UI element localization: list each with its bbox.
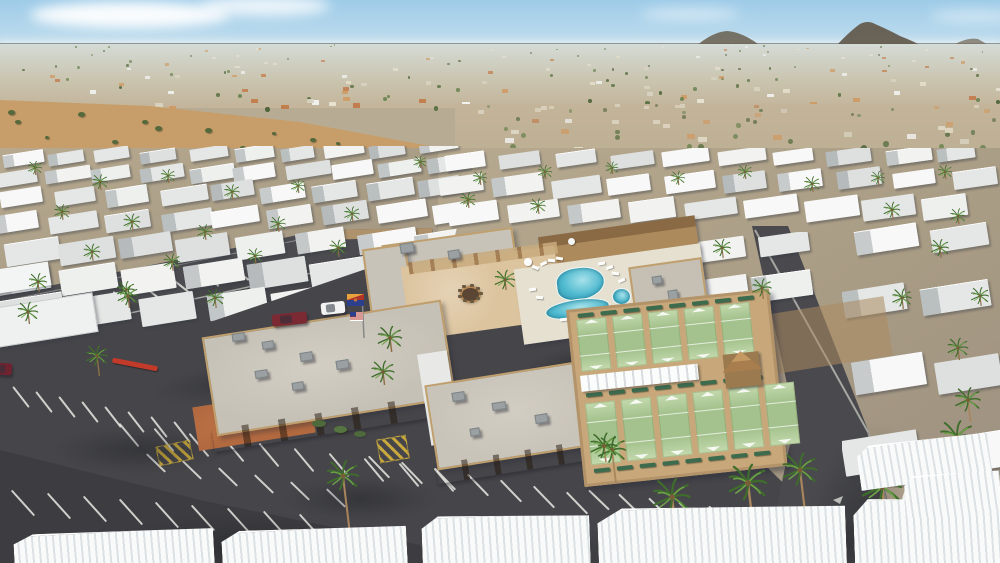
- foreground-roof: [13, 525, 215, 563]
- foreground-home-roofs: [0, 0, 1000, 563]
- aerial-photo-mobile-home-park: [0, 0, 1000, 563]
- foreground-roof: [421, 511, 591, 563]
- foreground-roof: [221, 522, 408, 563]
- foreground-roof: [597, 501, 847, 563]
